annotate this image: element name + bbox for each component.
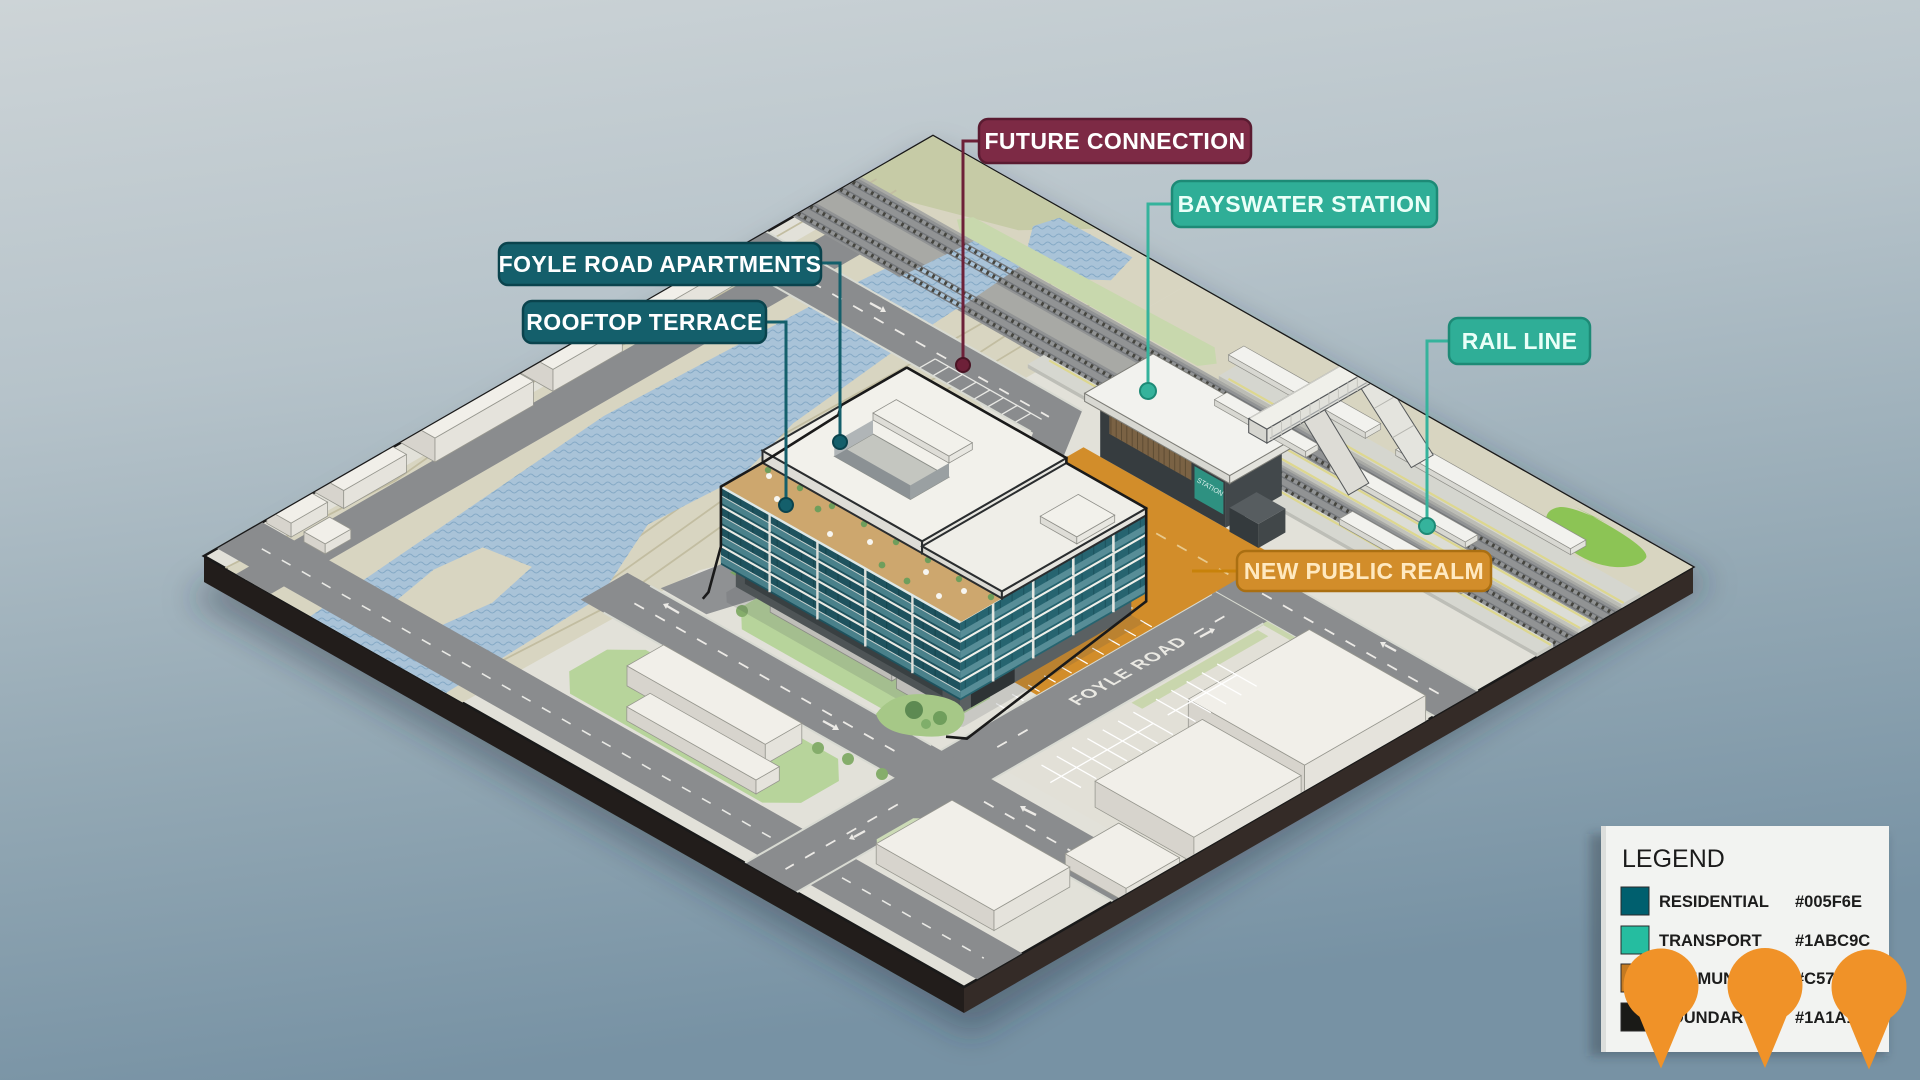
svg-text:BAYSWATER STATION: BAYSWATER STATION — [1178, 191, 1432, 217]
svg-text:RESIDENTIAL: RESIDENTIAL — [1659, 893, 1769, 911]
svg-text:NEW PUBLIC REALM: NEW PUBLIC REALM — [1244, 558, 1484, 584]
svg-text:LEGEND: LEGEND — [1622, 845, 1725, 873]
svg-text:TRANSPORT: TRANSPORT — [1659, 932, 1762, 950]
svg-text:RAIL LINE: RAIL LINE — [1462, 328, 1578, 354]
svg-text:#1ABC9C: #1ABC9C — [1795, 932, 1870, 950]
svg-text:ROOFTOP TERRACE: ROOFTOP TERRACE — [526, 309, 762, 335]
svg-text:FUTURE CONNECTION: FUTURE CONNECTION — [984, 128, 1245, 154]
svg-text:#005F6E: #005F6E — [1795, 893, 1862, 911]
svg-text:FOYLE ROAD APARTMENTS: FOYLE ROAD APARTMENTS — [499, 251, 822, 277]
